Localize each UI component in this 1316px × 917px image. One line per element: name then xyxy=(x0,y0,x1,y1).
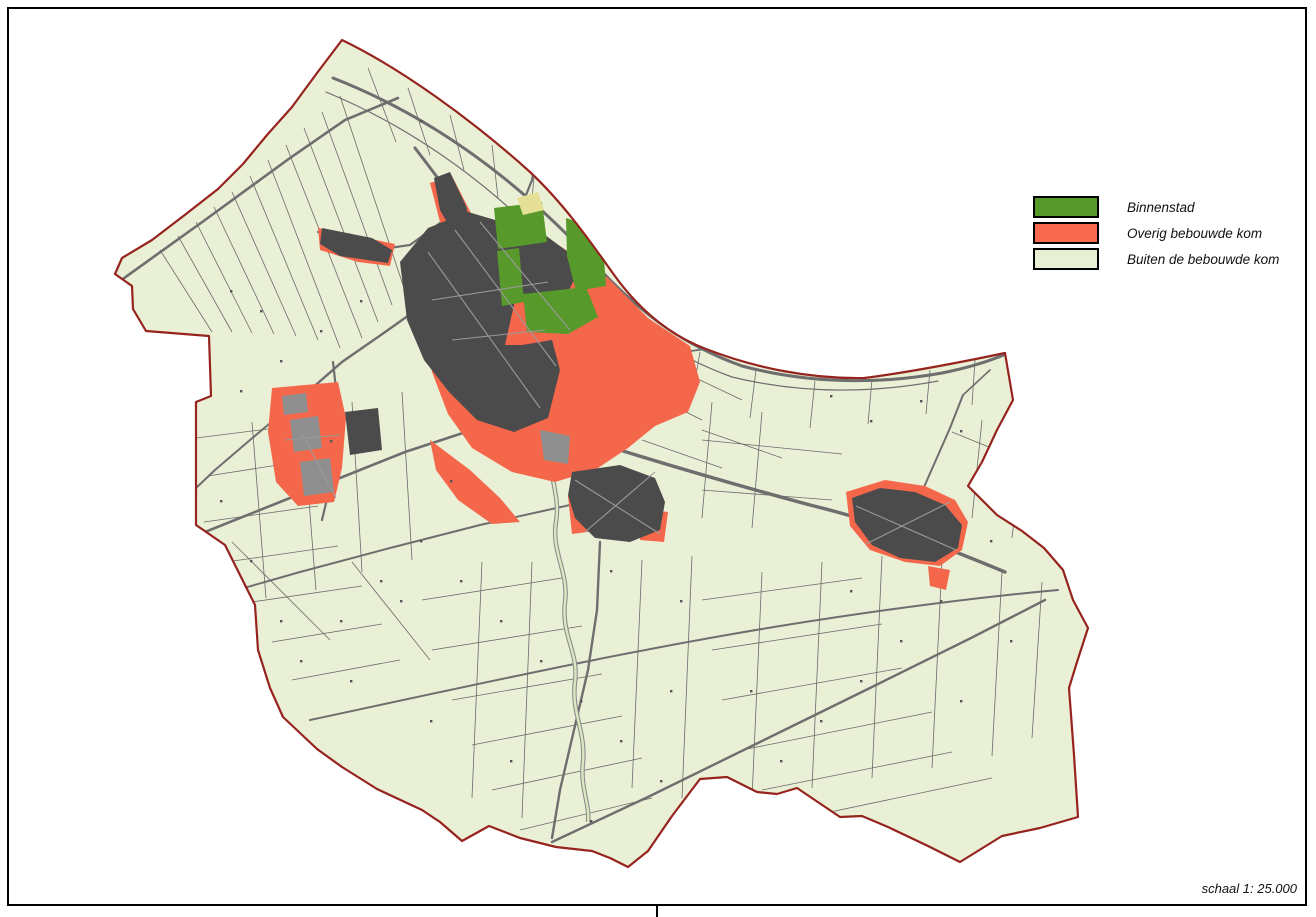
farm-speck xyxy=(220,500,222,502)
farm-speck xyxy=(700,820,702,822)
farm-speck xyxy=(470,95,472,97)
farm-speck xyxy=(380,580,382,582)
farm-speck xyxy=(400,600,402,602)
farm-speck xyxy=(390,250,392,252)
legend-label: Binnenstad xyxy=(1127,200,1195,215)
farm-speck xyxy=(670,690,672,692)
legend-swatch xyxy=(1033,248,1099,270)
farm-speck xyxy=(240,390,242,392)
farm-speck xyxy=(740,800,742,802)
farm-speck xyxy=(340,620,342,622)
farm-speck xyxy=(280,360,282,362)
titleblock-divider xyxy=(656,905,658,917)
farm-speck xyxy=(850,590,852,592)
farm-speck xyxy=(860,680,862,682)
farm-speck xyxy=(360,300,362,302)
farm-speck xyxy=(640,230,642,232)
farm-speck xyxy=(870,420,872,422)
farm-speck xyxy=(300,660,302,662)
farm-speck xyxy=(750,690,752,692)
paved-area xyxy=(290,416,322,452)
legend-swatch xyxy=(1033,222,1099,244)
farm-speck xyxy=(460,580,462,582)
farm-speck xyxy=(610,570,612,572)
farm-speck xyxy=(960,430,962,432)
farm-speck xyxy=(680,280,682,282)
farm-speck xyxy=(260,310,262,312)
farm-speck xyxy=(920,400,922,402)
legend: BinnenstadOverig bebouwde komBuiten de b… xyxy=(1033,196,1279,274)
farm-speck xyxy=(610,180,612,182)
farm-speck xyxy=(1030,520,1032,522)
farm-speck xyxy=(680,600,682,602)
farm-speck xyxy=(560,140,562,142)
building-cluster xyxy=(345,408,382,455)
farm-speck xyxy=(660,780,662,782)
farm-speck xyxy=(500,620,502,622)
farm-speck xyxy=(250,560,252,562)
farm-speck xyxy=(780,360,782,362)
farm-speck xyxy=(940,600,942,602)
legend-swatch xyxy=(1033,196,1099,218)
farm-speck xyxy=(200,360,202,362)
farm-speck xyxy=(320,330,322,332)
map-sheet: BinnenstadOverig bebouwde komBuiten de b… xyxy=(0,0,1316,917)
farm-speck xyxy=(730,330,732,332)
farm-speck xyxy=(900,640,902,642)
legend-row: Binnenstad xyxy=(1033,196,1279,218)
paved-area xyxy=(300,458,334,496)
legend-row: Overig bebouwde kom xyxy=(1033,222,1279,244)
farm-speck xyxy=(830,395,832,397)
farm-speck xyxy=(430,720,432,722)
farm-speck xyxy=(230,290,232,292)
farm-speck xyxy=(820,720,822,722)
farm-speck xyxy=(580,700,582,702)
farm-speck xyxy=(1010,640,1012,642)
farm-speck xyxy=(450,480,452,482)
farm-speck xyxy=(330,440,332,442)
farm-speck xyxy=(510,760,512,762)
legend-row: Buiten de bebouwde kom xyxy=(1033,248,1279,270)
scale-text: schaal 1: 25.000 xyxy=(1202,881,1297,896)
farm-speck xyxy=(620,740,622,742)
farm-speck xyxy=(520,120,522,122)
farm-speck xyxy=(960,700,962,702)
farm-speck xyxy=(990,540,992,542)
farm-speck xyxy=(1000,470,1002,472)
farm-speck xyxy=(420,540,422,542)
paved-area xyxy=(282,393,308,415)
farm-speck xyxy=(590,820,592,822)
farm-speck xyxy=(350,680,352,682)
legend-label: Buiten de bebouwde kom xyxy=(1127,252,1279,267)
paved-area xyxy=(540,430,570,464)
municipality-map xyxy=(0,0,1316,917)
legend-label: Overig bebouwde kom xyxy=(1127,226,1262,241)
farm-speck xyxy=(780,760,782,762)
farm-speck xyxy=(540,660,542,662)
farm-speck xyxy=(420,120,422,122)
farm-speck xyxy=(280,620,282,622)
